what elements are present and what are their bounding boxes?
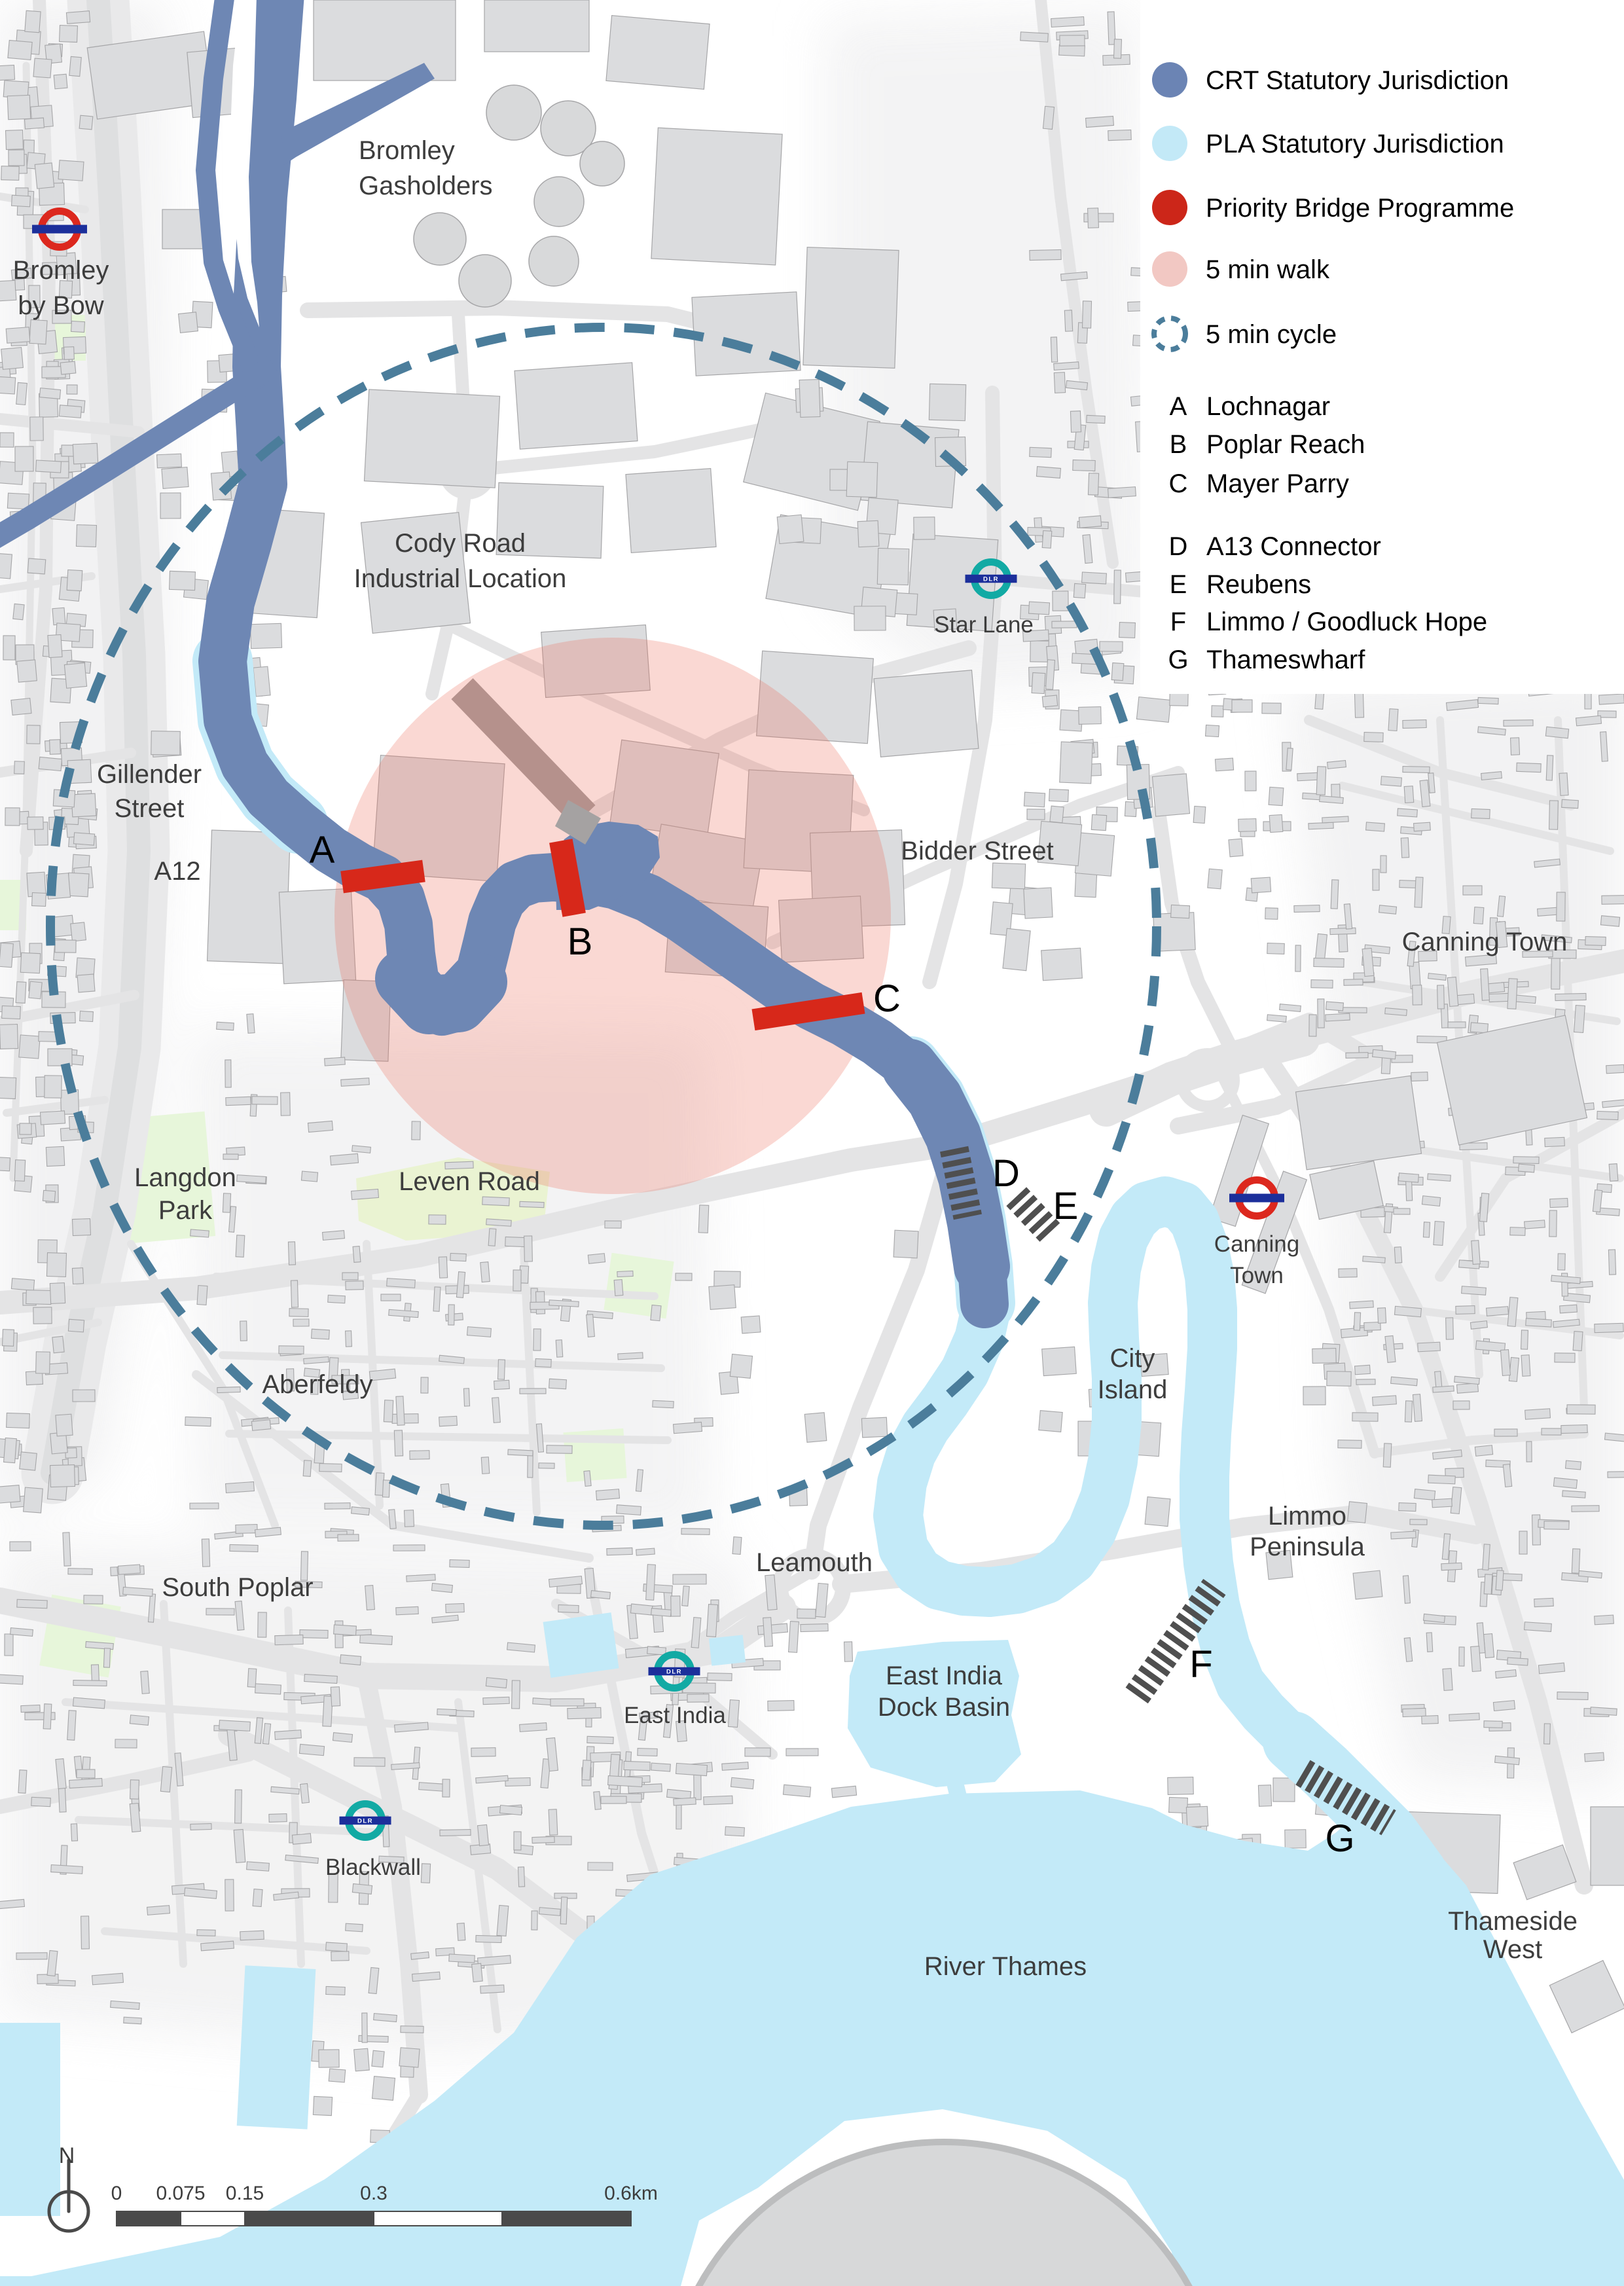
svg-text:Dock Basin: Dock Basin (878, 1693, 1010, 1722)
svg-text:by Bow: by Bow (18, 291, 103, 320)
svg-text:Town: Town (1230, 1263, 1284, 1288)
svg-text:B: B (568, 920, 593, 963)
svg-text:E: E (1170, 570, 1187, 599)
svg-text:East India: East India (624, 1703, 726, 1728)
svg-text:C: C (873, 977, 901, 1020)
svg-text:Star Lane: Star Lane (934, 612, 1034, 638)
svg-text:Leamouth: Leamouth (756, 1548, 873, 1577)
svg-text:Island: Island (1098, 1375, 1168, 1404)
svg-text:Gillender: Gillender (97, 760, 202, 789)
svg-text:Gasholders: Gasholders (359, 172, 493, 200)
svg-text:5 min cycle: 5 min cycle (1206, 320, 1337, 349)
svg-text:Aberfeldy: Aberfeldy (262, 1370, 373, 1399)
svg-text:N: N (59, 2143, 75, 2168)
svg-text:Bromley: Bromley (359, 136, 455, 165)
svg-text:Langdon: Langdon (134, 1163, 236, 1192)
svg-text:DLR: DLR (666, 1669, 682, 1676)
svg-text:Bidder Street: Bidder Street (901, 837, 1053, 865)
svg-text:0.3: 0.3 (360, 2183, 388, 2204)
svg-text:Poplar Reach: Poplar Reach (1206, 430, 1365, 459)
svg-text:Industrial Location: Industrial Location (354, 564, 567, 593)
svg-text:DLR: DLR (357, 1818, 373, 1825)
svg-text:Bromley: Bromley (13, 256, 109, 285)
svg-text:A12: A12 (154, 857, 200, 886)
svg-text:City: City (1110, 1344, 1155, 1373)
svg-text:Leven Road: Leven Road (399, 1167, 540, 1196)
svg-text:0.15: 0.15 (226, 2183, 264, 2204)
svg-text:Limmo: Limmo (1268, 1502, 1346, 1531)
svg-text:F: F (1170, 608, 1186, 636)
svg-text:0.6km: 0.6km (604, 2183, 658, 2204)
svg-text:South Poplar: South Poplar (162, 1573, 313, 1602)
svg-text:A: A (310, 829, 335, 871)
svg-text:0: 0 (111, 2183, 122, 2204)
svg-text:A13 Connector: A13 Connector (1206, 532, 1381, 561)
svg-text:B: B (1170, 430, 1187, 459)
svg-text:Canning Town: Canning Town (1402, 928, 1568, 956)
svg-text:A: A (1170, 392, 1187, 421)
svg-text:D: D (992, 1152, 1020, 1195)
svg-text:Limmo / Goodluck Hope: Limmo / Goodluck Hope (1206, 608, 1487, 636)
svg-text:C: C (1169, 469, 1188, 498)
svg-text:Park: Park (158, 1196, 213, 1225)
svg-text:West: West (1483, 1935, 1542, 1964)
svg-text:Cody Road: Cody Road (395, 529, 526, 558)
svg-text:0.075: 0.075 (156, 2183, 205, 2204)
svg-text:F: F (1189, 1643, 1212, 1686)
svg-text:PLA Statutory Jurisdiction: PLA Statutory Jurisdiction (1206, 130, 1504, 158)
svg-text:Mayer Parry: Mayer Parry (1206, 469, 1349, 498)
svg-text:D: D (1169, 532, 1188, 561)
svg-text:Peninsula: Peninsula (1250, 1533, 1365, 1561)
svg-text:East India: East India (886, 1661, 1003, 1690)
svg-text:Priority Bridge Programme: Priority Bridge Programme (1206, 194, 1514, 223)
svg-text:Blackwall: Blackwall (325, 1855, 421, 1880)
svg-text:River Thames: River Thames (924, 1952, 1087, 1981)
svg-text:Thameswharf: Thameswharf (1206, 645, 1365, 674)
svg-text:G: G (1325, 1817, 1354, 1860)
svg-text:CRT Statutory Jurisdiction: CRT Statutory Jurisdiction (1206, 66, 1509, 95)
svg-text:Canning: Canning (1214, 1231, 1299, 1257)
svg-text:DLR: DLR (983, 576, 999, 583)
svg-text:Lochnagar: Lochnagar (1206, 392, 1330, 421)
svg-text:E: E (1053, 1185, 1079, 1227)
svg-text:Thameside: Thameside (1448, 1907, 1578, 1936)
svg-text:Reubens: Reubens (1206, 570, 1311, 599)
svg-text:Street: Street (115, 794, 185, 823)
svg-text:G: G (1168, 645, 1188, 674)
svg-text:5 min walk: 5 min walk (1206, 255, 1330, 284)
